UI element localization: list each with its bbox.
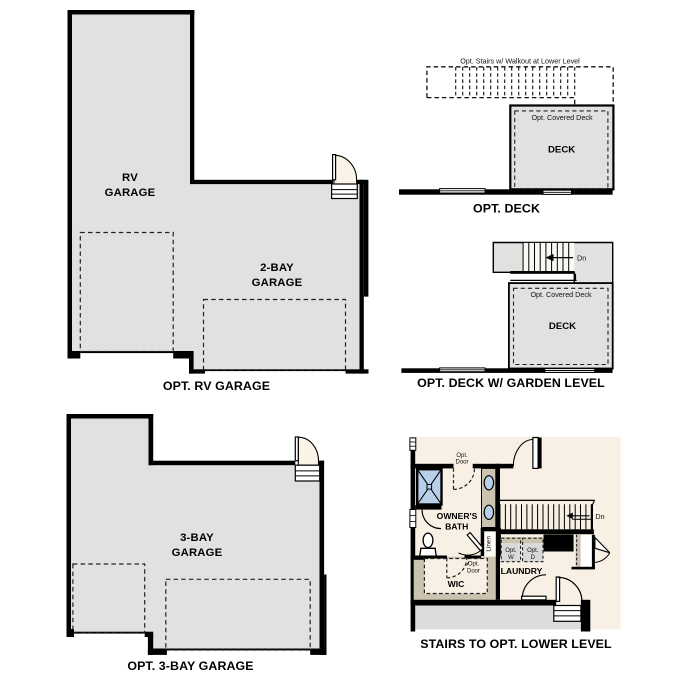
svg-text:3-BAY: 3-BAY	[180, 532, 214, 544]
svg-text:Opt. Covered Deck: Opt. Covered Deck	[530, 290, 592, 299]
svg-text:Door: Door	[467, 569, 480, 575]
svg-text:WIC: WIC	[448, 579, 465, 589]
svg-text:BATH: BATH	[445, 522, 468, 532]
svg-text:GARAGE: GARAGE	[105, 187, 156, 199]
svg-text:DECK: DECK	[548, 144, 575, 155]
svg-text:2-BAY: 2-BAY	[260, 262, 294, 274]
svg-text:GARAGE: GARAGE	[172, 547, 223, 559]
svg-text:OPT. DECK W/ GARDEN LEVEL: OPT. DECK W/ GARDEN LEVEL	[417, 376, 605, 390]
svg-text:Opt.: Opt.	[527, 548, 539, 554]
svg-text:OPT. 3-BAY GARAGE: OPT. 3-BAY GARAGE	[127, 659, 253, 673]
svg-text:Door: Door	[455, 460, 468, 466]
svg-text:Opt.: Opt.	[456, 453, 468, 459]
svg-text:GARAGE: GARAGE	[252, 277, 303, 289]
svg-text:DECK: DECK	[549, 321, 576, 332]
svg-text:Dn: Dn	[577, 254, 586, 263]
svg-text:Opt. Covered Deck: Opt. Covered Deck	[531, 113, 593, 122]
svg-text:LAUNDRY: LAUNDRY	[501, 566, 543, 576]
svg-text:STAIRS TO OPT. LOWER LEVEL: STAIRS TO OPT. LOWER LEVEL	[420, 637, 612, 651]
svg-text:Opt.: Opt.	[468, 562, 480, 568]
svg-text:Opt. Stairs w/ Walkout at Lowe: Opt. Stairs w/ Walkout at Lower Level	[460, 57, 580, 66]
svg-text:OPT. DECK: OPT. DECK	[473, 202, 540, 216]
svg-text:OWNER'S: OWNER'S	[437, 511, 478, 521]
svg-text:W: W	[508, 555, 514, 561]
svg-text:Opt.: Opt.	[505, 548, 517, 554]
svg-text:Dn: Dn	[595, 512, 604, 521]
svg-text:OPT. RV GARAGE: OPT. RV GARAGE	[163, 379, 270, 393]
svg-text:RV: RV	[122, 172, 138, 184]
svg-text:D: D	[531, 555, 536, 561]
svg-text:Linen: Linen	[485, 536, 492, 552]
